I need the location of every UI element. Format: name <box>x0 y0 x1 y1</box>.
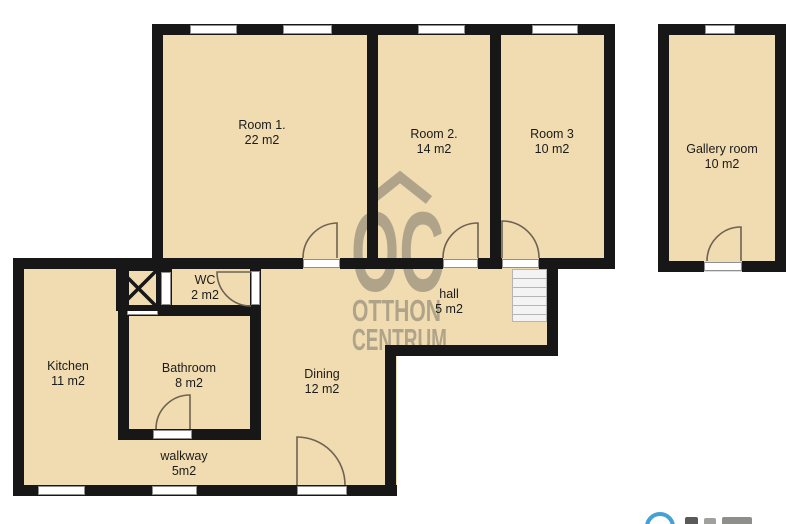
room-name: walkway <box>160 449 207 464</box>
wall-hall-bottom <box>385 345 558 356</box>
room-name: Room 2. <box>410 127 457 142</box>
wall-gallery-left <box>658 24 669 272</box>
partner-logo-circle-icon <box>645 512 675 524</box>
label-hall: hall 5 m2 <box>435 287 463 317</box>
floor-plan: OC OTTHON CENTRUM <box>0 0 800 524</box>
label-room2: Room 2. 14 m2 <box>410 127 457 157</box>
wall-lower-left <box>13 258 24 496</box>
wall-divider-room1-room2 <box>367 24 378 269</box>
window-room1-b <box>283 25 332 34</box>
wall-gallery-bottom-seg2 <box>742 261 786 272</box>
room-area: 11 m2 <box>47 374 89 389</box>
room-area: 10 m2 <box>686 157 758 172</box>
label-kitchen: Kitchen 11 m2 <box>47 359 89 389</box>
label-bathroom: Bathroom 8 m2 <box>162 361 216 391</box>
door-threshold-room3 <box>502 259 539 268</box>
shaft-box <box>116 266 161 311</box>
wall-top-right <box>604 24 615 269</box>
room-area: 5 m2 <box>435 302 463 317</box>
room-area: 2 m2 <box>191 288 219 303</box>
room-name: hall <box>435 287 463 302</box>
partner-logo-text-fragment <box>685 517 698 524</box>
room-area: 22 m2 <box>238 133 285 148</box>
wall-divider-room2-room3 <box>490 24 501 269</box>
wall-hall-right <box>547 258 558 356</box>
room-name: Bathroom <box>162 361 216 376</box>
label-gallery-room: Gallery room 10 m2 <box>686 142 758 172</box>
door-threshold-room1 <box>303 259 340 268</box>
door-threshold-gallery <box>704 262 742 271</box>
door-threshold-bathroom <box>153 430 192 439</box>
room-area: 14 m2 <box>410 142 457 157</box>
wall-gallery-bottom-seg1 <box>658 261 704 272</box>
window-kitchen-bottom <box>38 486 85 495</box>
room-name: Gallery room <box>686 142 758 157</box>
door-threshold-room2 <box>443 259 478 268</box>
room-name: WC <box>191 273 219 288</box>
wall-top-bottom-seg3 <box>478 258 502 269</box>
label-room1: Room 1. 22 m2 <box>238 118 285 148</box>
label-wc: WC 2 m2 <box>191 273 219 303</box>
room-name: Dining <box>304 367 339 382</box>
staircase <box>512 269 547 322</box>
room-name: Room 1. <box>238 118 285 133</box>
room-area: 8 m2 <box>162 376 216 391</box>
window-walkway-bottom <box>152 486 197 495</box>
label-room3: Room 3 10 m2 <box>530 127 574 157</box>
window-room3 <box>532 25 578 34</box>
room-area: 12 m2 <box>304 382 339 397</box>
partner-logo-text-fragment <box>722 517 752 524</box>
wall-gallery-right <box>775 24 786 272</box>
door-threshold-entrance <box>297 486 347 495</box>
wall-dining-right <box>385 345 396 496</box>
label-dining: Dining 12 m2 <box>304 367 339 397</box>
partner-logo-text-fragment <box>704 518 716 524</box>
window-gallery <box>705 25 735 34</box>
label-walkway: walkway 5m2 <box>160 449 207 479</box>
wall-top-bottom-seg2 <box>340 258 443 269</box>
wall-top-bottom-seg1 <box>152 258 303 269</box>
room-name: Kitchen <box>47 359 89 374</box>
wall-top-left <box>152 24 163 269</box>
room-area: 10 m2 <box>530 142 574 157</box>
window-room2 <box>418 25 465 34</box>
partner-logo-cropped <box>645 512 775 524</box>
window-wc-left <box>161 272 171 305</box>
window-room1-a <box>190 25 237 34</box>
door-threshold-wc <box>251 271 260 305</box>
room-area: 5m2 <box>160 464 207 479</box>
room-name: Room 3 <box>530 127 574 142</box>
